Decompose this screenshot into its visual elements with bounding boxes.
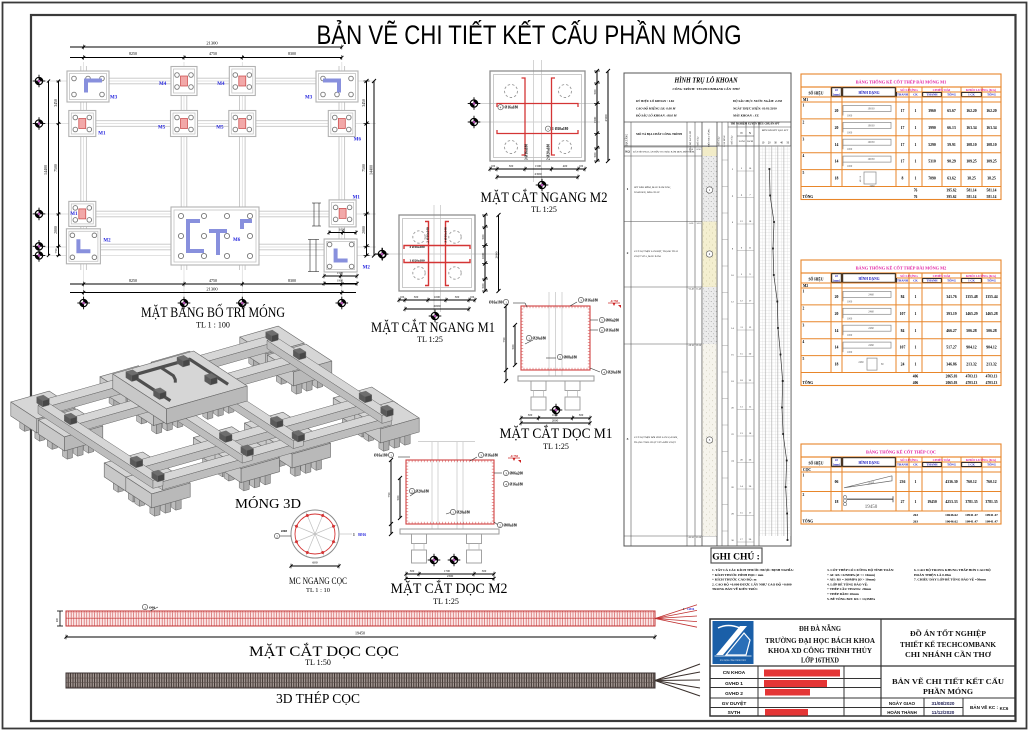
svg-text:MẶT BẰNG BỐ TRÍ MÓNG: MẶT BẰNG BỐ TRÍ MÓNG: [141, 303, 285, 321]
svg-text:109.25: 109.25: [966, 160, 977, 164]
svg-text:KC6: KC6: [1000, 706, 1009, 711]
svg-text:06: 06: [835, 480, 839, 484]
svg-text:7500: 7500: [362, 164, 366, 172]
svg-text:14: 14: [835, 143, 839, 147]
svg-text:2460: 2460: [868, 293, 874, 296]
svg-text:2000: 2000: [54, 226, 58, 234]
svg-text:CAO ĐỘ ĐÁY LỚP: CAO ĐỘ ĐÁY LỚP: [689, 130, 692, 151]
svg-text:2000: 2000: [434, 304, 441, 308]
svg-text:393.19: 393.19: [946, 312, 957, 316]
svg-text:4. LỚP BÊ TÔNG BẢO VỆ:: 4. LỚP BÊ TÔNG BẢO VỆ:: [827, 581, 868, 586]
svg-text:3D THÉP CỌC: 3D THÉP CỌC: [276, 691, 360, 706]
svg-text:NGÀY GIAO: NGÀY GIAO: [889, 700, 916, 706]
svg-text:TL 1:50: TL 1:50: [305, 658, 331, 667]
svg-text:236: 236: [900, 480, 906, 484]
svg-text:BẢN VẼ KC :: BẢN VẼ KC :: [970, 704, 999, 710]
svg-text:Ø: Ø: [835, 88, 838, 92]
svg-text:THANH: THANH: [897, 279, 909, 283]
svg-text:1355.48: 1355.48: [965, 295, 977, 299]
svg-text:1: 1: [803, 474, 805, 478]
svg-text:CHẶT VỪA, MÀU XÁM.: CHẶT VỪA, MÀU XÁM.: [634, 255, 661, 258]
svg-text:1000: 1000: [847, 165, 853, 168]
svg-text:2460: 2460: [868, 327, 874, 330]
svg-text:TL 1:25: TL 1:25: [543, 442, 569, 451]
svg-text:HÌNH DẠNG: HÌNH DẠNG: [858, 460, 879, 465]
svg-text:TỔNG: TỔNG: [803, 194, 814, 199]
svg-text:162.20: 162.20: [986, 109, 997, 113]
svg-text:SỐ HIỆU: SỐ HIỆU: [809, 461, 824, 466]
svg-text:406: 406: [913, 375, 919, 379]
svg-text:2 Ø16a140: 2 Ø16a140: [426, 227, 430, 243]
svg-text:LẤY MẪU: LẤY MẪU: [723, 135, 726, 146]
svg-text:8250: 8250: [129, 51, 137, 56]
svg-text:1: 1: [915, 126, 917, 130]
svg-text:500: 500: [579, 413, 584, 417]
svg-text:20: 20: [835, 109, 839, 113]
svg-text:+ KÍCH THƯỚC HÌNH HỌC: mm: + KÍCH THƯỚC HÌNH HỌC: mm: [712, 572, 764, 577]
svg-text:2460: 2460: [868, 344, 874, 347]
svg-text:38.25: 38.25: [967, 177, 976, 181]
svg-text:8Ø16: 8Ø16: [358, 533, 366, 537]
svg-text:4703.13: 4703.13: [986, 375, 998, 379]
svg-text:21300: 21300: [206, 41, 218, 46]
svg-text:3781.35: 3781.35: [985, 500, 997, 504]
svg-text:3781.35: 3781.35: [965, 500, 977, 504]
svg-text:SÉT DẺO MỀM, MÀU XÁM NÂU,: SÉT DẺO MỀM, MÀU XÁM NÂU,: [634, 186, 671, 189]
svg-text:+ THÉP CẦU THANG: 20mm: + THÉP CẦU THANG: 20mm: [827, 586, 871, 591]
svg-text:500: 500: [481, 283, 485, 288]
svg-text:750: 750: [502, 337, 506, 342]
svg-text:213.32: 213.32: [966, 363, 977, 367]
svg-text:4750: 4750: [209, 278, 217, 283]
svg-text:THIẾT KẾ TECHCOMBANK: THIẾT KẾ TECHCOMBANK: [900, 639, 996, 649]
svg-text:TỔNG: TỔNG: [947, 92, 957, 97]
svg-text:M6: M6: [354, 138, 362, 143]
svg-text:M4: M4: [159, 82, 167, 87]
svg-text:Ø08a180: Ø08a180: [504, 523, 518, 527]
svg-text:19030: 19030: [868, 158, 876, 161]
svg-text:10941.47: 10941.47: [985, 520, 998, 524]
svg-text:10941.47: 10941.47: [965, 520, 978, 524]
svg-text:5310: 5310: [928, 160, 936, 164]
svg-text:Ø16a180: Ø16a180: [489, 300, 503, 304]
svg-text:38.25: 38.25: [987, 177, 996, 181]
svg-text:3: 3: [803, 137, 805, 141]
svg-text:20: 20: [835, 295, 839, 299]
svg-text:2300: 2300: [447, 574, 454, 578]
svg-text:904.12: 904.12: [966, 346, 977, 350]
svg-text:163.34: 163.34: [986, 126, 997, 130]
svg-text:8: 8: [902, 177, 904, 181]
svg-text:300: 300: [482, 569, 487, 573]
svg-text:4336.30: 4336.30: [945, 480, 957, 484]
svg-text:M4: M4: [217, 82, 225, 87]
svg-text:Ø20a180: Ø20a180: [416, 489, 430, 493]
svg-text:TRONG BẢN VẼ KIẾN TRÚC: TRONG BẢN VẼ KIẾN TRÚC: [712, 586, 758, 591]
svg-text:PHẦN MÓNG: PHẦN MÓNG: [923, 686, 973, 696]
svg-text:163.34: 163.34: [966, 126, 977, 130]
svg-text:1Ø16: 1Ø16: [687, 607, 695, 611]
svg-text:+ AII: RS = 360MPA (Ø > 10mm): + AII: RS = 360MPA (Ø > 10mm): [827, 578, 875, 582]
svg-text:3960: 3960: [928, 109, 936, 113]
svg-text:100: 100: [400, 296, 405, 299]
svg-text:TỔNG: TỔNG: [947, 278, 957, 283]
svg-text:SỐ LƯỢNG: SỐ LƯỢNG: [900, 457, 918, 462]
svg-text:15CM: 15CM: [738, 140, 745, 143]
svg-text:KHỐI LƯỢNG (KG): KHỐI LƯỢNG (KG): [966, 273, 996, 278]
svg-text:500: 500: [481, 234, 485, 239]
svg-text:5. BÊ TÔNG B25: Rb = 14,5MPa: 5. BÊ TÔNG B25: Rb = 14,5MPa: [827, 596, 875, 601]
svg-text:4703.13: 4703.13: [986, 381, 998, 385]
svg-text:1465.29: 1465.29: [965, 312, 977, 316]
svg-text:1 Ø20a180: 1 Ø20a180: [552, 127, 568, 131]
svg-text:84: 84: [901, 295, 905, 299]
svg-text:100: 100: [470, 296, 475, 299]
svg-text:CHIỀU DÀI: CHIỀU DÀI: [933, 457, 951, 462]
svg-text:3450: 3450: [54, 99, 58, 107]
svg-text:1465.28: 1465.28: [985, 312, 997, 316]
svg-text:300: 300: [410, 569, 415, 573]
svg-text:1000: 1000: [847, 148, 853, 151]
svg-text:MÓNG 3D: MÓNG 3D: [235, 495, 301, 512]
svg-text:TL 1 : 100: TL 1 : 100: [196, 321, 230, 330]
svg-text:ĐỒ ÁN TỐT NGHIỆP: ĐỒ ÁN TỐT NGHIỆP: [910, 628, 986, 638]
svg-text:-55.30: -55.30: [688, 537, 695, 539]
svg-text:395.62: 395.62: [947, 195, 957, 199]
svg-text:3. CỐT THÉP CÓ CƯỜNG ĐỘ TÍNH T: 3. CỐT THÉP CÓ CƯỜNG ĐỘ TÍNH TOÁN:: [827, 567, 894, 572]
svg-text:Ø16a180: Ø16a180: [510, 482, 524, 486]
svg-text:CK: CK: [913, 279, 918, 283]
svg-text:+ AI: RS =225MPA (Ø <= 10mm): + AI: RS =225MPA (Ø <= 10mm): [827, 573, 875, 577]
svg-text:2500: 2500: [604, 114, 608, 121]
svg-text:1: 1: [627, 187, 629, 191]
svg-text:CN KHOA: CN KHOA: [723, 670, 746, 676]
svg-text:2300: 2300: [535, 172, 542, 176]
svg-text:6. CAO ĐỘ TRONG KHUNG THẤP HƠN: 6. CAO ĐỘ TRONG KHUNG THẤP HƠN CAO ĐỘ: [914, 567, 991, 572]
svg-text:5: 5: [803, 171, 805, 175]
svg-text:1000: 1000: [847, 317, 853, 320]
svg-text:10941.47: 10941.47: [985, 513, 998, 517]
svg-text:17: 17: [901, 160, 905, 164]
svg-text:Ø08: Ø08: [281, 529, 287, 533]
svg-text:ĐẤT SÉT PHA LẪN HỮU CƠ, MÀU XÁ: ĐẤT SÉT PHA LẪN HỮU CƠ, MÀU XÁM ĐEN, DẺO…: [633, 151, 695, 154]
svg-text:MC NGANG CỌC: MC NGANG CỌC: [289, 577, 347, 587]
svg-text:TL 1 : 10: TL 1 : 10: [306, 587, 330, 594]
svg-text:CK: CK: [913, 93, 918, 97]
svg-text:1900: 1900: [337, 279, 344, 283]
svg-text:SVTH: SVTH: [728, 710, 741, 716]
svg-text:108.10: 108.10: [986, 143, 997, 147]
svg-text:MẶT CẮT NGANG M1: MẶT CẮT NGANG M1: [371, 319, 495, 336]
svg-text:18: 18: [835, 177, 839, 181]
svg-text:TỔNG: TỔNG: [803, 380, 814, 385]
svg-text:7500: 7500: [54, 164, 58, 172]
svg-text:-15.40: -15.40: [688, 289, 695, 291]
svg-text:21300: 21300: [206, 287, 218, 292]
svg-text:3450: 3450: [362, 99, 366, 107]
svg-text:1: 1: [803, 290, 805, 294]
svg-text:4: 4: [803, 154, 805, 158]
svg-text:4703.13: 4703.13: [966, 375, 978, 379]
svg-text:+ KÍCH THƯỚC CAO ĐỘ: m: + KÍCH THƯỚC CAO ĐỘ: m: [712, 577, 757, 582]
svg-text:341.76: 341.76: [946, 295, 957, 299]
svg-text:19030: 19030: [868, 108, 876, 111]
svg-text:20: 20: [835, 126, 839, 130]
svg-text:500: 500: [593, 152, 597, 157]
svg-text:600: 600: [312, 561, 318, 565]
svg-text:Ø: Ø: [835, 458, 838, 462]
svg-text:581.14: 581.14: [967, 195, 977, 199]
svg-text:ĐỘ SÂU: ĐỘ SÂU: [731, 135, 734, 144]
svg-text:17: 17: [901, 126, 905, 130]
svg-text:1000: 1000: [847, 351, 853, 354]
svg-text:3 Ø16a180: 3 Ø16a180: [525, 144, 529, 160]
svg-text:3: 3: [803, 323, 805, 327]
svg-text:31/08/2020: 31/08/2020: [932, 701, 955, 706]
svg-text:14: 14: [835, 346, 839, 350]
svg-text:107: 107: [900, 312, 906, 316]
svg-text:BẢNG THỐNG KÊ CỐT THÉP ĐÀI MÓN: BẢNG THỐNG KÊ CỐT THÉP ĐÀI MÓNG M2: [856, 266, 947, 271]
svg-text:TỔNG: TỔNG: [803, 519, 814, 524]
svg-text:7090: 7090: [928, 177, 936, 181]
svg-text:24: 24: [901, 363, 905, 367]
svg-text:500: 500: [593, 89, 597, 94]
svg-text:1: 1: [915, 109, 917, 113]
svg-text:Ø16a180: Ø16a180: [585, 298, 599, 302]
svg-text:4750: 4750: [209, 51, 217, 56]
svg-text:BẢNG THỐNG KÊ CỐT THÉP CỌC: BẢNG THỐNG KÊ CỐT THÉP CỌC: [866, 450, 936, 455]
svg-text:CHIỀU DÀI: CHIỀU DÀI: [933, 273, 951, 278]
svg-text:1960: 1960: [869, 185, 875, 188]
svg-text:760.12: 760.12: [986, 480, 997, 484]
svg-text:GVHD 2: GVHD 2: [725, 691, 743, 697]
svg-text:2000: 2000: [495, 251, 499, 258]
svg-text:HOÀN THIỆN LÀ 0.05m: HOÀN THIỆN LÀ 0.05m: [914, 572, 951, 577]
svg-text:+ THÉP DẦM: 20mm: + THÉP DẦM: 20mm: [827, 591, 859, 596]
svg-text:14: 14: [835, 160, 839, 164]
svg-text:76: 76: [914, 195, 918, 199]
svg-text:19450: 19450: [355, 631, 365, 636]
svg-text:M5: M5: [216, 126, 224, 131]
svg-text:1: 1: [915, 312, 917, 316]
svg-text:ĐH ĐÀ NẴNG: ĐH ĐÀ NẴNG: [799, 623, 841, 633]
svg-text:17: 17: [901, 143, 905, 147]
svg-text:1000: 1000: [847, 115, 853, 118]
svg-text:65.67: 65.67: [947, 109, 956, 113]
svg-text:GHI CHÚ :: GHI CHÚ :: [712, 551, 760, 563]
svg-text:10646.62: 10646.62: [945, 513, 958, 517]
svg-text:27: 27: [901, 500, 905, 504]
svg-text:ĐỊA TẦNG: ĐỊA TẦNG: [626, 134, 629, 146]
svg-text:2000: 2000: [552, 419, 559, 423]
svg-text:1000: 1000: [847, 334, 853, 337]
svg-text:M2: M2: [803, 284, 808, 288]
svg-text:19450: 19450: [865, 505, 878, 510]
svg-text:11/12/2020: 11/12/2020: [932, 710, 955, 715]
svg-text:14400: 14400: [43, 165, 48, 175]
svg-text:20: 20: [835, 312, 839, 316]
svg-text:CÁT HẠT MỊN LẪN BỘT, TRẠNG THÁ: CÁT HẠT MỊN LẪN BỘT, TRẠNG THÁI: [634, 250, 678, 253]
svg-text:1: 1: [915, 500, 917, 504]
svg-text:Ø08a180: Ø08a180: [564, 355, 578, 359]
svg-text:CHI NHÁNH CẦN THƠ: CHI NHÁNH CẦN THƠ: [905, 649, 992, 659]
svg-text:Ø06a200: Ø06a200: [606, 318, 620, 322]
svg-text:1000: 1000: [552, 413, 559, 417]
svg-text:760.12: 760.12: [966, 480, 977, 484]
svg-text:4253.33: 4253.33: [945, 500, 957, 504]
svg-text:SỐ HIỆU: SỐ HIỆU: [809, 91, 824, 96]
svg-text:HOÀN THÀNH: HOÀN THÀNH: [887, 710, 917, 715]
svg-text:108.10: 108.10: [966, 143, 977, 147]
svg-text:76: 76: [914, 189, 918, 193]
svg-text:750: 750: [54, 248, 58, 253]
svg-text:TL 1:25: TL 1:25: [531, 205, 557, 214]
svg-text:84: 84: [901, 329, 905, 333]
svg-text:4703.13: 4703.13: [966, 381, 978, 385]
svg-text:M3: M3: [305, 96, 313, 101]
svg-text:1000: 1000: [847, 131, 853, 134]
svg-text:HÌNH DẠNG: HÌNH DẠNG: [858, 90, 879, 95]
svg-text:CK: CK: [913, 463, 918, 467]
svg-text:TL 1:25: TL 1:25: [417, 335, 443, 344]
svg-text:1000: 1000: [339, 228, 346, 232]
svg-text:395.62: 395.62: [947, 189, 957, 193]
svg-text:2000: 2000: [362, 226, 366, 234]
svg-text:500: 500: [511, 344, 515, 349]
svg-text:18: 18: [835, 500, 839, 504]
svg-text:KHỐI LƯỢNG (KG): KHỐI LƯỢNG (KG): [966, 87, 996, 92]
svg-text:SỐ HIỆU: SỐ HIỆU: [809, 277, 824, 282]
svg-text:2460: 2460: [858, 361, 864, 364]
svg-text:HÌNH TRỤ LỖ KHOAN: HÌNH TRỤ LỖ KHOAN: [674, 75, 739, 85]
svg-text:ĐỘ SÂU: ĐỘ SÂU: [697, 136, 700, 145]
svg-text:346.86: 346.86: [946, 363, 957, 367]
svg-text:500: 500: [396, 495, 400, 500]
svg-text:M1: M1: [353, 195, 361, 200]
svg-text:7. CHIỀU DÀY LỚP BÊ TÔNG BẢO V: 7. CHIỀU DÀY LỚP BÊ TÔNG BẢO VỆ =50mm: [914, 577, 986, 582]
svg-text:M1: M1: [803, 98, 808, 102]
svg-text:600: 600: [56, 617, 59, 622]
svg-text:506.28: 506.28: [966, 329, 977, 333]
svg-text:-19.10: -19.10: [688, 345, 695, 347]
svg-text:1 Ø20a180: 1 Ø20a180: [409, 259, 425, 263]
svg-text:M5: M5: [158, 126, 166, 131]
svg-text:M1: M1: [98, 132, 106, 137]
svg-text:2 Ø20a180: 2 Ø20a180: [547, 144, 551, 160]
svg-text:263: 263: [913, 513, 918, 517]
svg-text:406: 406: [913, 381, 919, 385]
svg-text:KHOA XD CÔNG TRÌNH THỦY: KHOA XD CÔNG TRÌNH THỦY: [768, 645, 872, 655]
svg-text:BẢN VẼ CHI TIẾT KẾT CẤU PHẦN M: BẢN VẼ CHI TIẾT KẾT CẤU PHẦN MÓNG: [317, 18, 742, 50]
svg-text:CÁT HẠT MỊN ĐÔI CHỖ LẪN SẠN SỎ: CÁT HẠT MỊN ĐÔI CHỖ LẪN SẠN SỎI,: [634, 436, 678, 439]
svg-text:1500: 1500: [593, 116, 597, 123]
svg-text:506.28: 506.28: [986, 329, 997, 333]
svg-text:Ø06a200: Ø06a200: [510, 471, 524, 475]
svg-text:66.13: 66.13: [947, 126, 956, 130]
svg-text:14400: 14400: [369, 165, 374, 175]
svg-text:1500: 1500: [337, 271, 344, 275]
svg-text:M2: M2: [103, 238, 111, 243]
svg-text:CỌC: CỌC: [803, 468, 811, 472]
svg-text:BẢNG THỐNG KÊ CỐT THÉP ĐÀI MÓN: BẢNG THỐNG KÊ CỐT THÉP ĐÀI MÓNG M1: [856, 80, 947, 85]
svg-text:KÝ HIỆU LỖ KHOAN : LK1: KÝ HIỆU LỖ KHOAN : LK1: [635, 98, 675, 103]
svg-text:1000: 1000: [481, 252, 485, 259]
svg-text:59.91: 59.91: [947, 143, 956, 147]
svg-text:300: 300: [455, 295, 460, 299]
svg-text:ĐỘ SÂU LỖ KHOAN : 80.0 M: ĐỘ SÂU LỖ KHOAN : 80.0 M: [635, 113, 677, 118]
svg-text:Ø6/50: Ø6/50: [859, 175, 862, 182]
svg-text:1: 1: [803, 104, 805, 108]
svg-text:8300: 8300: [288, 278, 296, 283]
svg-text:BẢN VẼ CHI TIẾT KẾT CẤU: BẢN VẼ CHI TIẾT KẾT CẤU: [892, 676, 1004, 686]
svg-text:GVHD 1: GVHD 1: [725, 681, 743, 687]
svg-text:BIỂU ĐỒ KẾT QUẢ SPT: BIỂU ĐỒ KẾT QUẢ SPT: [762, 129, 789, 132]
svg-text:TỔNG: TỔNG: [947, 462, 957, 467]
svg-text:904.12: 904.12: [986, 346, 997, 350]
svg-text:19030: 19030: [868, 141, 876, 144]
svg-text:MẶT CẮT DỌC M1: MẶT CẮT DỌC M1: [500, 425, 613, 442]
svg-text:1000: 1000: [434, 295, 441, 299]
svg-text:63.62: 63.62: [947, 177, 956, 181]
svg-text:1: 1: [915, 143, 917, 147]
svg-text:THANH: THANH: [897, 93, 909, 97]
svg-text:2: 2: [803, 493, 805, 497]
svg-text:LỚP 16THXD: LỚP 16THXD: [801, 655, 839, 665]
svg-text:30CM: 30CM: [747, 140, 754, 143]
svg-text:107: 107: [900, 346, 906, 350]
svg-text:-0.750: -0.750: [610, 299, 619, 303]
svg-text:4: 4: [803, 340, 805, 344]
svg-text:2: 2: [803, 120, 805, 124]
svg-text:4 Ø16a180: 4 Ø16a180: [409, 245, 425, 249]
svg-text:2460: 2460: [868, 310, 874, 313]
svg-text:14: 14: [835, 329, 839, 333]
svg-text:5: 5: [803, 357, 805, 361]
svg-text:CHIỀU DÀI: CHIỀU DÀI: [933, 87, 951, 92]
svg-text:213.32: 213.32: [986, 363, 997, 367]
svg-text:1: 1: [915, 329, 917, 333]
svg-text:8300: 8300: [288, 51, 296, 56]
svg-text:M2: M2: [363, 266, 371, 271]
svg-text:M3: M3: [110, 96, 118, 101]
svg-text:MẶT CẮT NGANG M2: MẶT CẮT NGANG M2: [481, 189, 608, 206]
svg-text:517.27: 517.27: [946, 346, 957, 350]
svg-text:MÁY KHOAN : XY.: MÁY KHOAN : XY.: [732, 113, 760, 118]
svg-text:1700: 1700: [444, 569, 451, 573]
svg-text:MẶT CẮT DỌC M2: MẶT CẮT DỌC M2: [391, 580, 508, 597]
svg-text:4 Ø16a180: 4 Ø16a180: [502, 106, 518, 110]
svg-text:ĐỘ SÂU: ĐỘ SÂU: [718, 136, 721, 145]
svg-text:XÁM ĐEN, DẺO CHẢY.: XÁM ĐEN, DẺO CHẢY.: [634, 191, 660, 194]
svg-text:TRƯỜNG ĐẠI HỌC BÁCH KHOA: TRƯỜNG ĐẠI HỌC BÁCH KHOA: [765, 635, 875, 645]
svg-text:CAO ĐỘ MIỆNG LK: 0.00 M: CAO ĐỘ MIỆNG LK: 0.00 M: [636, 105, 676, 110]
svg-text:19030: 19030: [868, 124, 876, 127]
svg-text:500: 500: [414, 295, 419, 299]
svg-text:M1: M1: [70, 212, 78, 217]
svg-text:2: 2: [803, 306, 805, 310]
svg-text:1000: 1000: [847, 300, 853, 303]
svg-text:1355.44: 1355.44: [985, 295, 997, 299]
svg-text:8250: 8250: [129, 278, 137, 283]
svg-text:10646.62: 10646.62: [945, 520, 958, 524]
svg-text:ĐỘ SÂU MỰC NƯỚC NGẦM: 2.2M: ĐỘ SÂU MỰC NƯỚC NGẦM: 2.2M: [732, 98, 782, 103]
svg-text:1: 1: [915, 177, 917, 181]
svg-text:SỐ LƯỢNG: SỐ LƯỢNG: [900, 273, 918, 278]
svg-text:1500: 1500: [535, 164, 542, 168]
svg-text:Ø08: Ø08: [149, 606, 155, 610]
svg-text:2065.03: 2065.03: [946, 381, 958, 385]
svg-text:263: 263: [913, 520, 918, 524]
